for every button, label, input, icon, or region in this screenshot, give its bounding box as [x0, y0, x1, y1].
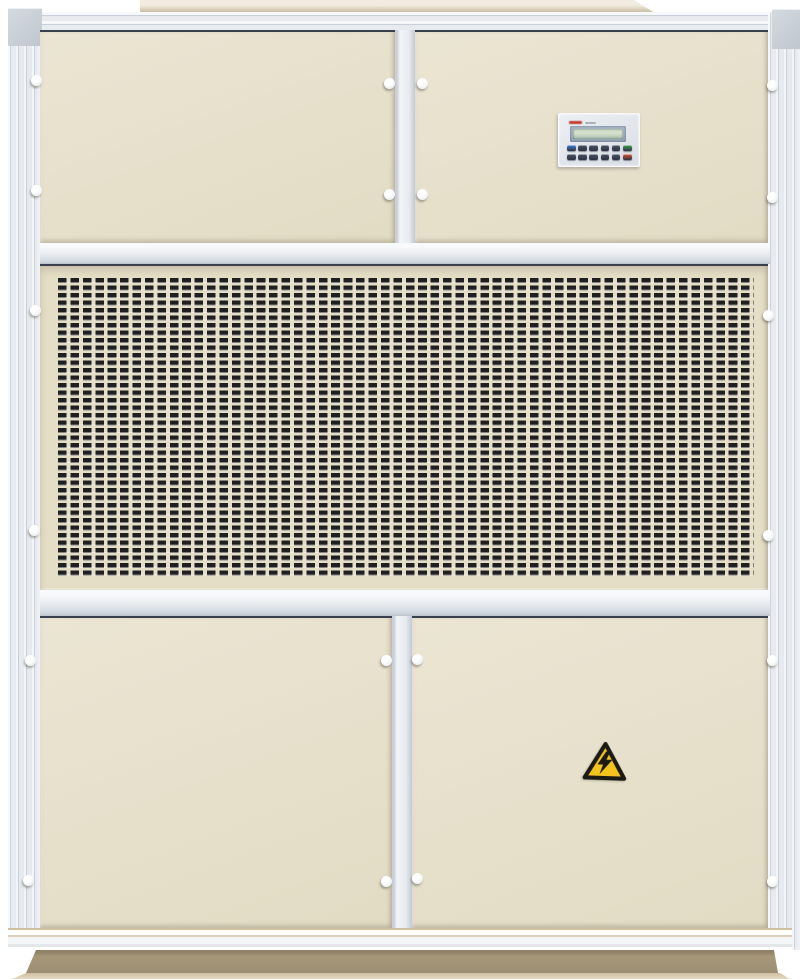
panel-latch-knob[interactable]: [417, 189, 428, 200]
panel-latch-knob[interactable]: [412, 654, 423, 665]
panel-latch-knob[interactable]: [30, 305, 41, 316]
panel-latch-knob[interactable]: [417, 78, 428, 89]
panel-latch-knob[interactable]: [29, 525, 40, 536]
panel-latch-knob[interactable]: [381, 876, 392, 887]
panel-latch-knob[interactable]: [767, 192, 778, 203]
panel-latch-knob[interactable]: [23, 875, 34, 886]
panel-latch-knob[interactable]: [763, 530, 774, 541]
panel-latch-knob[interactable]: [763, 310, 774, 321]
panel-latch-knob[interactable]: [381, 655, 392, 666]
panel-latch-knob[interactable]: [767, 80, 778, 91]
panel-latch-knob[interactable]: [31, 75, 42, 86]
panel-latch-knob[interactable]: [384, 78, 395, 89]
panel-latch-knob[interactable]: [31, 185, 42, 196]
panel-latch-knob[interactable]: [412, 873, 423, 884]
panel-latch-knob[interactable]: [767, 655, 778, 666]
panel-latch-knob[interactable]: [767, 876, 778, 887]
unit-cabinet: [0, 0, 800, 980]
knob-layer: [0, 0, 800, 980]
panel-latch-knob[interactable]: [384, 189, 395, 200]
panel-latch-knob[interactable]: [25, 655, 36, 666]
